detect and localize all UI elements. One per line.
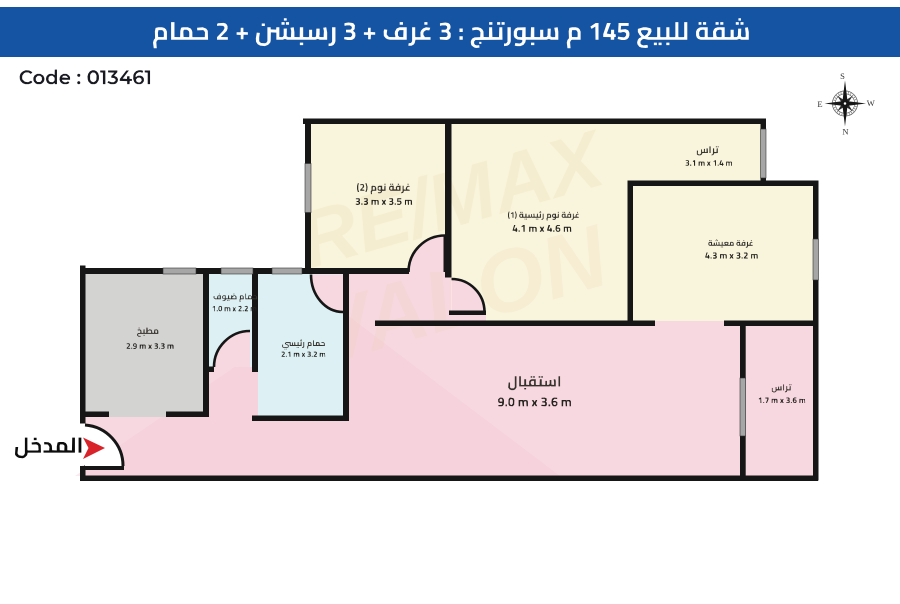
svg-text:E: E xyxy=(817,99,822,109)
svg-text:W: W xyxy=(867,98,875,108)
svg-text:S: S xyxy=(840,71,845,81)
svg-text:N: N xyxy=(842,127,848,137)
